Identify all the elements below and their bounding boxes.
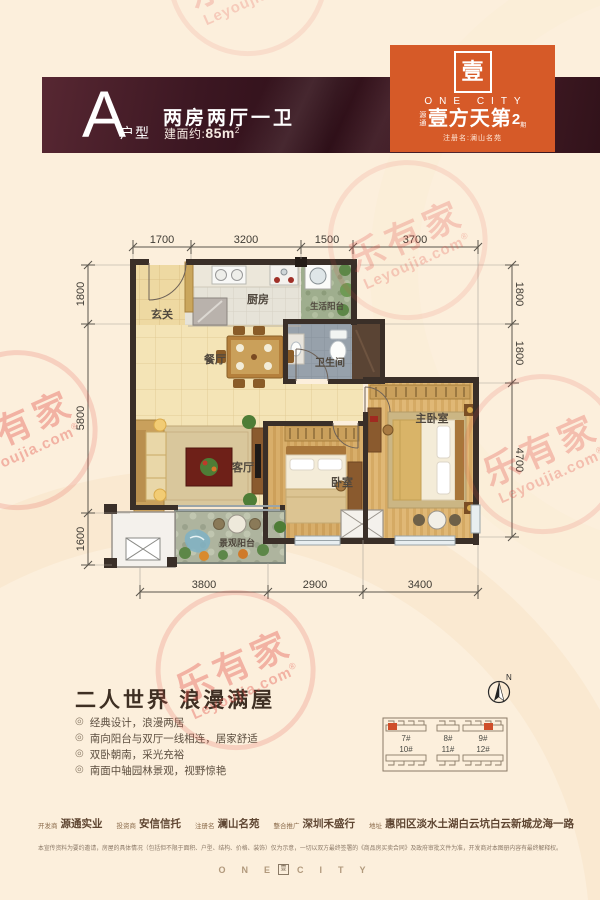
registered-name: 注册名:澜山名苑 [390,133,555,143]
info-registered: 注册名 澜山名苑 [195,816,260,831]
building-label: 7# [402,734,411,743]
bullet-icon: ◎ [75,765,84,775]
selling-bullet: ◎经典设计，浪漫两居 [75,714,258,730]
watermark-ring-icon [142,0,353,81]
unit-type-suffix: 户型 [120,123,150,143]
dim-top-4: 3700 [403,234,427,246]
bay-box [341,510,383,538]
building-labels: 7# 8# 9# 10# 11# 12# [399,734,490,754]
room-label-master-bedroom: 主卧室 [416,411,449,425]
room-label-dining: 餐厅 [203,352,226,366]
footer-info: 开发商 源通实业 投资商 安信信托 注册名 澜山名苑 整合推广 深圳禾盛行 地址… [38,816,564,831]
brand-en: ONE CITY [390,96,555,107]
dim-top-1: 1700 [150,234,174,246]
selling-bullets: ◎经典设计，浪漫两居 ◎南向阳台与双厅一线相连，居家舒适 ◎双卧朝南，采光充裕 … [75,714,258,778]
dim-right-1: 1800 [513,282,525,306]
compass-north-label: N [506,673,512,682]
selling-bullet: ◎南向阳台与双厅一线相连，居家舒适 [75,730,258,746]
dim-left-2: 5800 [75,406,87,430]
compass-icon: N [489,673,513,703]
info-investor: 投资商 安信信托 [117,816,182,831]
info-agency: 整合推广 深圳禾盛行 [274,816,356,831]
dim-bottom-3: 3400 [408,579,432,591]
brand-footer: ONE 壹 CITY [0,864,600,875]
selling-title: 二人世界 浪漫满屋 [75,684,275,714]
building-label: 11# [442,745,455,754]
watermark: 乐有家 Leyoujia.com® [147,0,352,47]
room-label-living: 客厅 [231,460,254,474]
room-label-bedroom: 卧室 [331,475,353,489]
dim-right-3: 4700 [513,448,525,472]
brand-seal-mini-icon: 壹 [278,864,289,875]
selling-bullet: ◎双卧朝南，采光充裕 [75,746,258,762]
building-label: 9# [479,734,488,743]
dim-right-2: 1800 [513,341,525,365]
brand-logo: 壹 ONE CITY 源通 壹方天第 2 期 注册名:澜山名苑 [390,45,555,152]
dim-bottom-1: 3800 [192,579,216,591]
siteplan: N 7# 8# 9# 10# 11# 12# [375,665,525,780]
info-address: 地址 惠阳区淡水土湖白云坑白云新城龙海一路 [369,816,574,831]
bullet-icon: ◎ [75,717,84,727]
dim-left-1: 1800 [75,282,87,306]
dim-top-2: 3200 [234,234,258,246]
building-label: 8# [444,734,453,743]
room-label-view-balcony: 景观阳台 [219,537,255,548]
room-label-kitchen: 厨房 [247,292,269,306]
bullet-icon: ◎ [75,749,84,759]
unit-area: 建面约:85m2 [164,125,240,142]
building-label: 12# [476,745,490,754]
brand-cn: 源通 壹方天第 2 期 [390,109,555,129]
watermark-cn: 乐有家 [147,0,344,30]
watermark-en: Leyoujia.com® [162,0,352,47]
selling-bullet: ◎南面中轴园林景观，视野惊艳 [75,762,258,778]
brand-seal-icon: 壹 [454,51,492,93]
bullet-icon: ◎ [75,733,84,743]
dim-top-3: 1500 [315,234,339,246]
room-label-foyer: 玄关 [151,307,173,321]
dim-left-3: 1600 [75,527,87,551]
dim-bottom-2: 2900 [303,579,327,591]
floorplan: 1700 3200 1500 3700 3800 2900 3400 1800 … [70,228,530,600]
disclaimer: 本宣传资料为要约邀请，房屋的具体情况（包括但不限于面积、户型、结构、价格、装饰）… [38,843,581,852]
building-label: 10# [399,745,413,754]
room-label-bathroom: 卫生间 [315,356,345,369]
room-label-utility-balcony: 生活阳台 [310,301,345,311]
flyer-page: 乐有家 Leyoujia.com® 乐有家 Leyoujia.com® 乐有家 … [0,0,600,900]
elevator-shaft [104,504,177,568]
info-developer: 开发商 源通实业 [38,816,103,831]
